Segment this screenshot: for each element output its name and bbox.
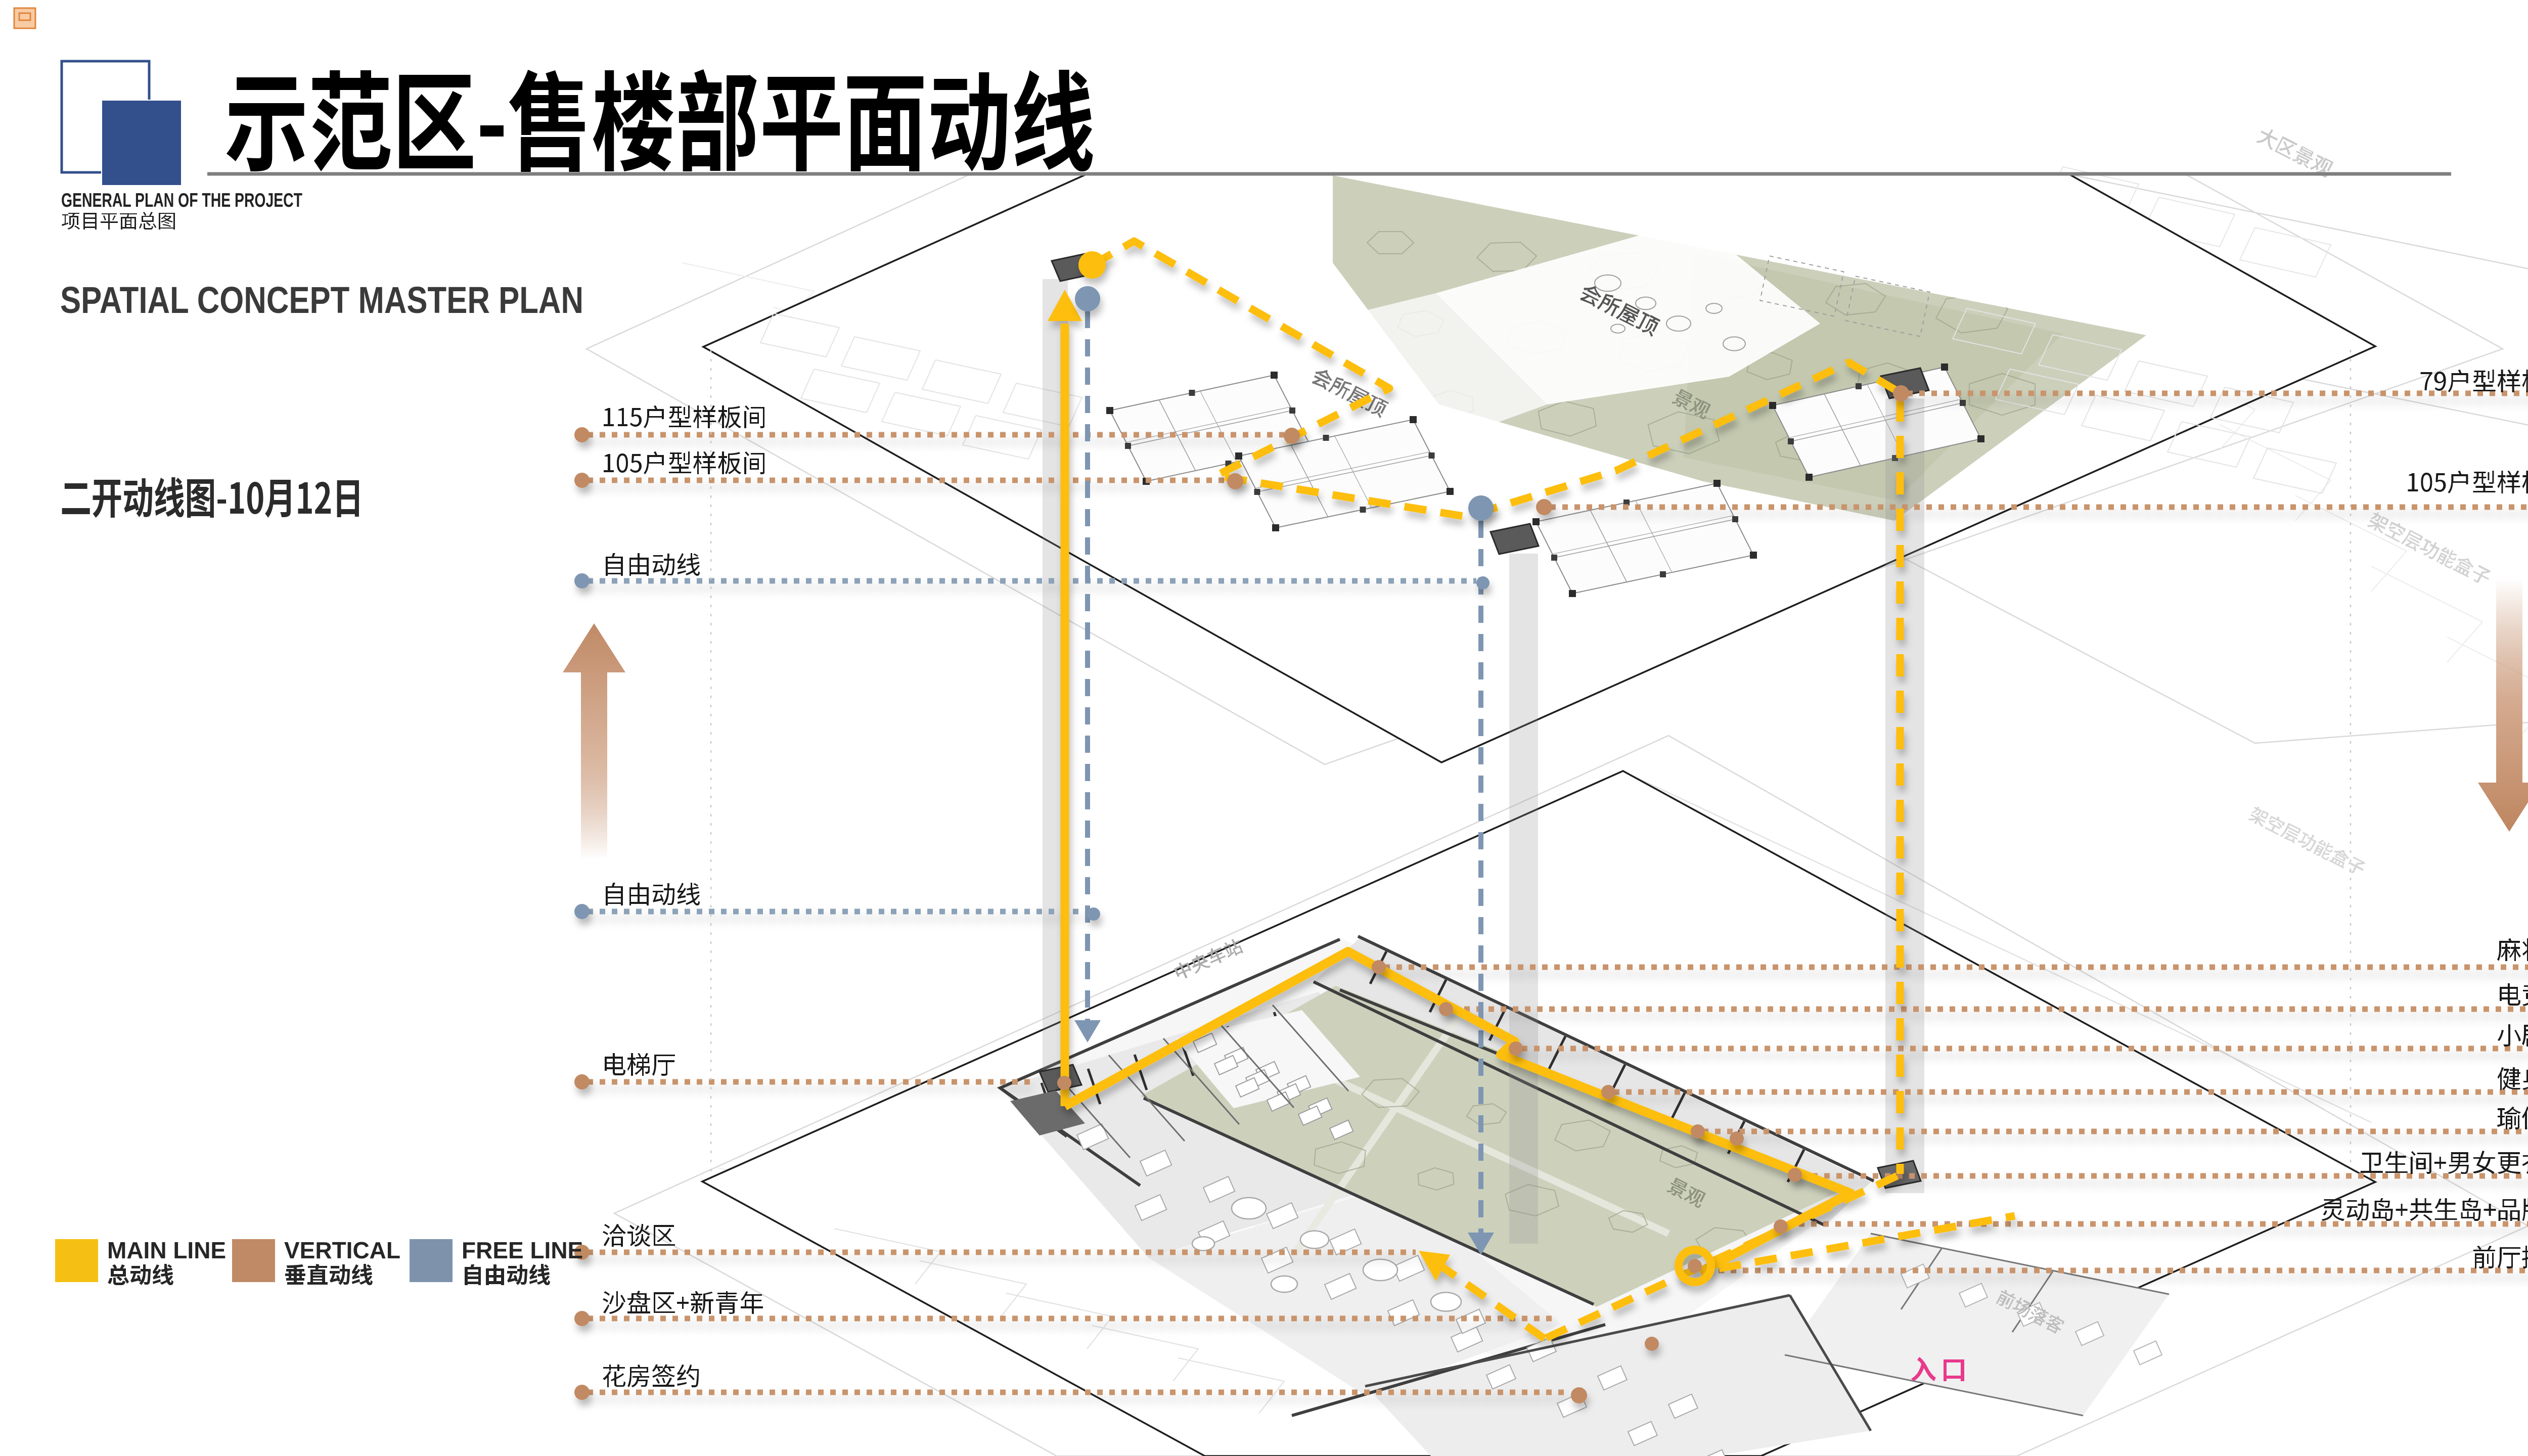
svg-text:MAIN LINE: MAIN LINE	[107, 1237, 226, 1263]
svg-text:GENERAL PLAN OF THE PROJECT: GENERAL PLAN OF THE PROJECT	[61, 190, 302, 211]
svg-text:VERTICAL: VERTICAL	[284, 1237, 400, 1263]
svg-text:FREE LINE: FREE LINE	[462, 1237, 583, 1263]
svg-text:SPATIAL CONCEPT MASTER PLAN: SPATIAL CONCEPT MASTER PLAN	[60, 279, 583, 321]
